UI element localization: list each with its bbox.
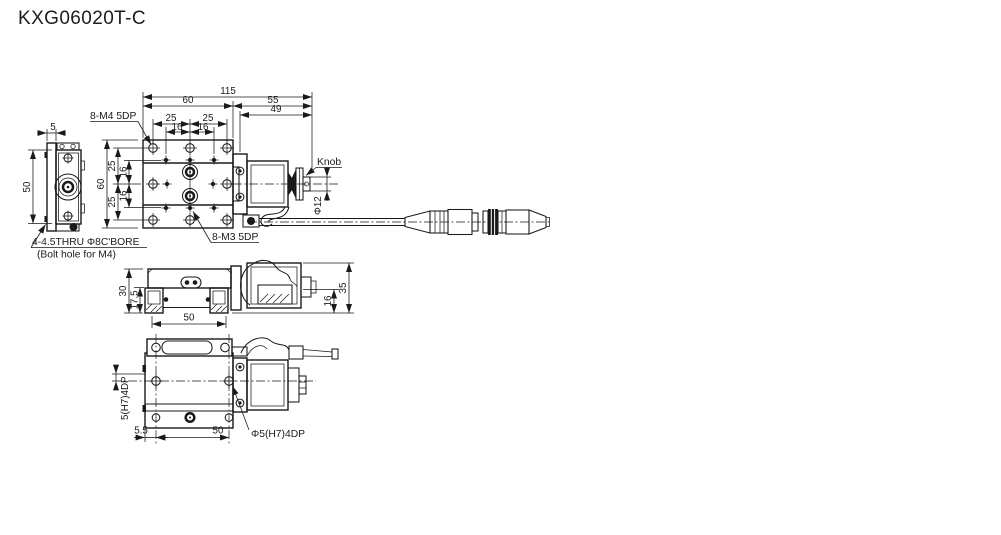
dim-16-front: 16	[323, 295, 334, 306]
dim-h60: 60	[96, 178, 107, 189]
hole	[220, 213, 234, 227]
dim-16a: 16	[172, 122, 183, 133]
hole	[146, 177, 160, 191]
leadscrew-bearing	[183, 165, 198, 180]
dim-v16b: 16	[119, 190, 130, 201]
front-view: 30 17.5 50 35 16	[118, 260, 354, 328]
hole	[183, 141, 197, 155]
tapped-hole	[163, 180, 172, 189]
hole	[220, 141, 234, 155]
front-view-dimensions: 30 17.5 50 35 16	[118, 263, 354, 328]
label-pin-hole: Φ5(H7)4DP	[251, 429, 305, 440]
dim-50-front: 50	[184, 313, 195, 324]
front-view-body	[145, 269, 231, 313]
dim-49: 49	[271, 104, 282, 115]
label-knob: Knob	[317, 157, 341, 168]
note-counterbore: 4-4.5THRU Φ8C'BORE	[32, 237, 140, 248]
dim-50: 50	[22, 181, 33, 192]
tapped-hole	[209, 180, 218, 189]
screw	[63, 211, 74, 222]
dim-knob-dia: Φ12	[313, 196, 324, 215]
end-view-body	[45, 143, 85, 231]
hole	[146, 141, 160, 155]
dim-v16a: 16	[119, 166, 130, 177]
technical-drawing: 115 60 55 49 25 25 16 16	[0, 0, 1001, 535]
label-m4-holes: 8-M4 5DP	[90, 111, 136, 122]
drawing-canvas: KXG06020T-C	[0, 0, 1001, 535]
dim-pin: 5(H7)4DP	[120, 376, 131, 420]
end-view-dimensions: 5 50	[22, 122, 66, 224]
bottom-view: 5(H7)4DP 5.5 50 Φ5(H7)4DP	[112, 334, 338, 444]
end-view-note: 4-4.5THRU Φ8C'BORE (Bolt hole for M4)	[31, 225, 147, 261]
dim-60: 60	[183, 95, 194, 106]
leadscrew-bearing	[183, 189, 198, 204]
screw	[236, 167, 244, 175]
dim-16b: 16	[198, 122, 209, 133]
dim-5: 5	[50, 122, 56, 133]
dim-17-5: 17.5	[130, 290, 141, 310]
dim-115: 115	[220, 86, 236, 97]
dim-35: 35	[338, 282, 349, 293]
hole	[146, 213, 160, 227]
label-m3-holes: 8-M3 5DP	[212, 232, 258, 243]
dim-v25b: 25	[107, 196, 118, 207]
screw	[236, 193, 244, 201]
screw	[63, 153, 74, 164]
screw	[236, 363, 244, 371]
dim-50-bottom: 50	[213, 426, 224, 437]
cable-clamp	[70, 223, 78, 231]
dim-v25a: 25	[107, 160, 118, 171]
dim-30: 30	[118, 285, 129, 296]
front-view-motor	[231, 260, 316, 310]
hole	[220, 177, 234, 191]
bottom-view-motor	[233, 338, 338, 412]
dim-5-5: 5.5	[134, 426, 148, 437]
note-bolt-hole: (Bolt hole for M4)	[37, 250, 116, 261]
top-view: 115 60 55 49 25 25 16 16	[90, 86, 552, 243]
top-view-cable	[243, 207, 552, 235]
